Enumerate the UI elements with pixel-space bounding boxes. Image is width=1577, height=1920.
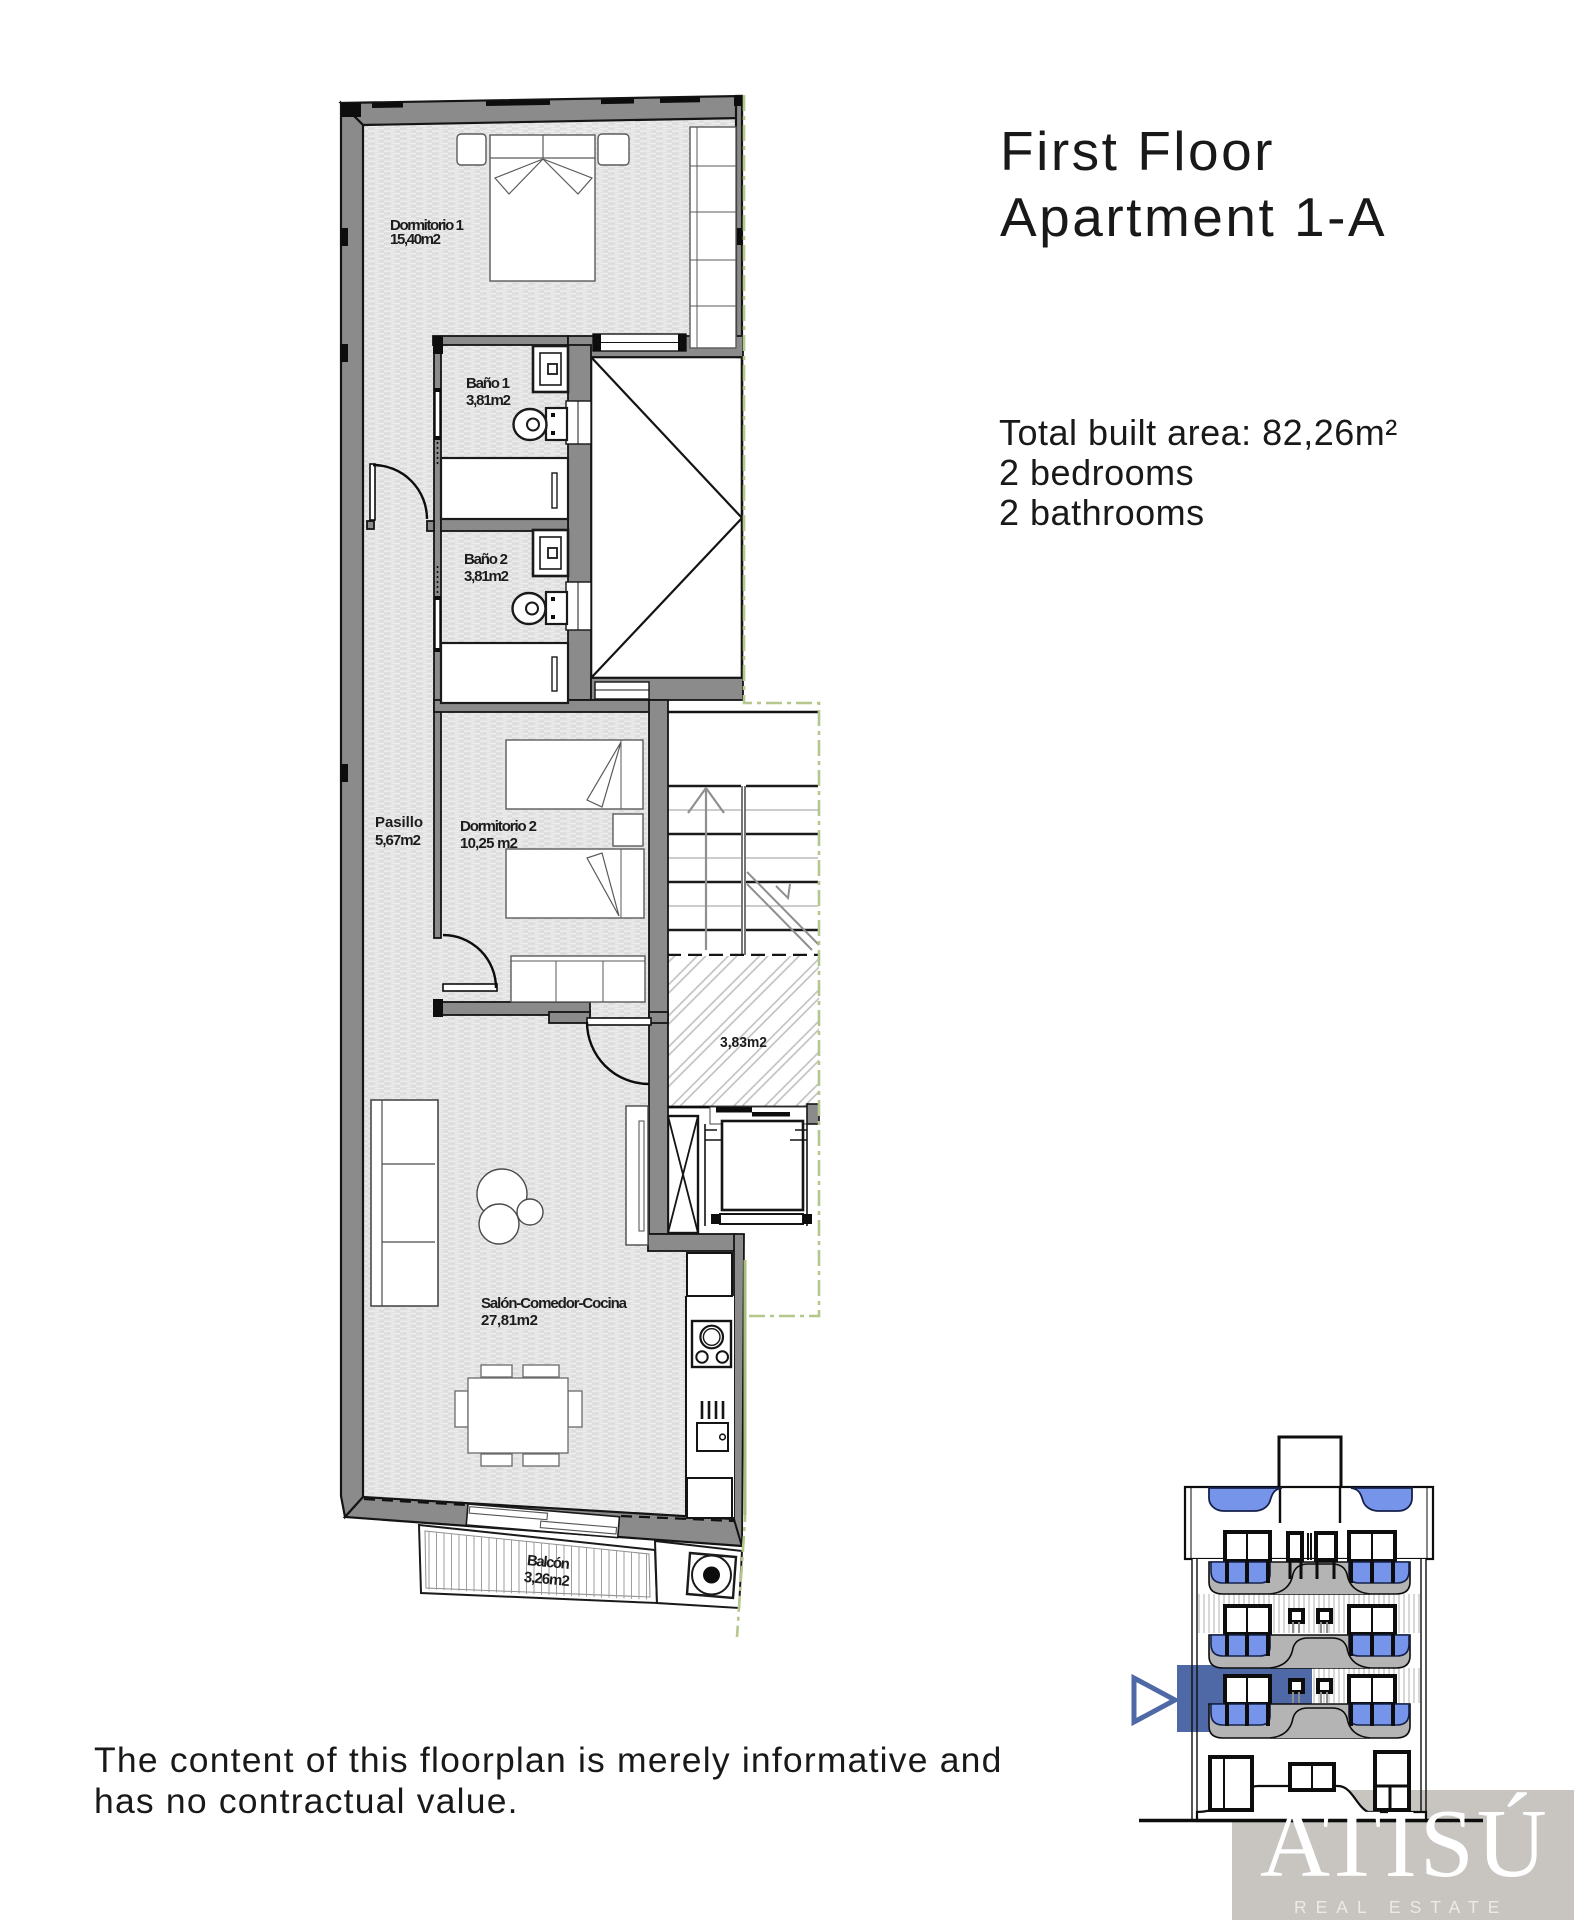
svg-text:Baño 2: Baño 2 (464, 551, 508, 568)
svg-text:ATISÚ: ATISÚ (1260, 1790, 1550, 1897)
svg-text:Baño 1: Baño 1 (466, 375, 510, 392)
svg-text:Dormitorio 2: Dormitorio 2 (460, 818, 537, 835)
svg-text:3,81m2: 3,81m2 (464, 568, 509, 585)
svg-text:Pasillo: Pasillo (375, 814, 423, 831)
svg-text:Salón-Comedor-Cocina: Salón-Comedor-Cocina (481, 1295, 628, 1312)
svg-text:3,83m2: 3,83m2 (720, 1034, 767, 1051)
svg-text:3,81m2: 3,81m2 (466, 392, 511, 409)
svg-text:15,40m2: 15,40m2 (390, 231, 441, 248)
svg-text:5,67m2: 5,67m2 (375, 832, 421, 849)
svg-text:27,81m2: 27,81m2 (481, 1312, 538, 1329)
svg-text:REAL ESTATE: REAL ESTATE (1294, 1897, 1508, 1917)
svg-text:10,25 m2: 10,25 m2 (460, 835, 518, 852)
